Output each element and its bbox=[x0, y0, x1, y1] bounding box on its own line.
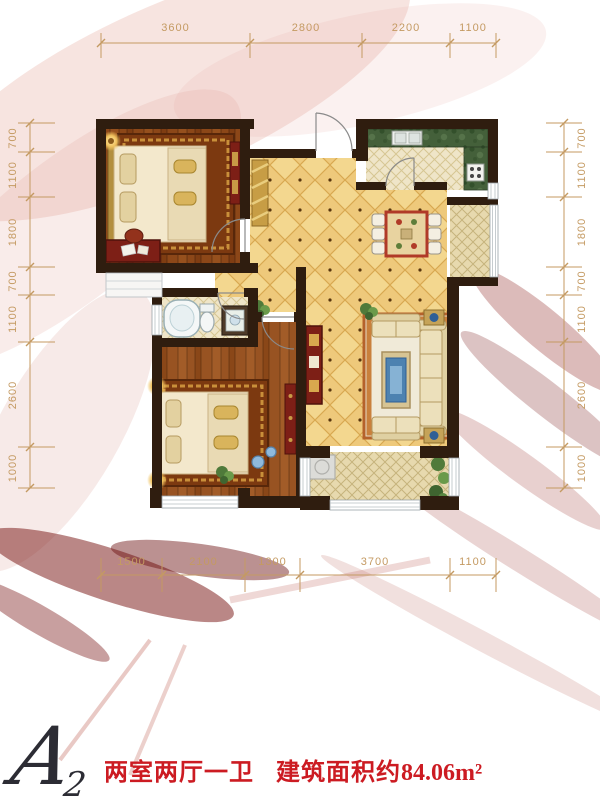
dim-label-right-2: 1800 bbox=[576, 218, 588, 246]
dining-set-icon bbox=[372, 212, 441, 256]
wardrobe-icon bbox=[285, 384, 296, 454]
bookshelf-icon bbox=[306, 326, 322, 404]
stove-icon bbox=[467, 164, 484, 181]
window-icon bbox=[490, 205, 498, 277]
washing-machine-icon bbox=[309, 455, 335, 479]
dim-label-left-2: 1800 bbox=[7, 218, 19, 246]
dim-label-top-2: 2200 bbox=[392, 22, 420, 34]
floorplan-page: 3600280022001100150021001300370011007001… bbox=[0, 0, 600, 800]
floorplan-drawing bbox=[0, 0, 600, 800]
dim-label-left-0: 700 bbox=[7, 127, 19, 148]
area-value: 84.06 bbox=[401, 760, 455, 786]
window-icon bbox=[300, 458, 310, 496]
loveseat-icon bbox=[372, 417, 420, 440]
dim-label-right-1: 1100 bbox=[576, 161, 588, 189]
dim-label-left-5: 2600 bbox=[7, 380, 19, 408]
basin-icon bbox=[266, 447, 276, 457]
master-bedroom-furniture bbox=[101, 131, 240, 262]
dim-label-left-1: 1100 bbox=[7, 161, 19, 189]
bay-window-icon bbox=[162, 496, 238, 508]
coffee-table-icon bbox=[382, 352, 410, 408]
dim-label-bottom-0: 1500 bbox=[117, 556, 145, 568]
sofa-icon bbox=[416, 320, 449, 436]
window-icon bbox=[330, 500, 420, 510]
side-table-icon bbox=[424, 428, 444, 443]
dim-label-right-5: 2600 bbox=[576, 380, 588, 408]
dim-label-top-3: 1100 bbox=[459, 22, 487, 34]
area-prefix: 建筑面积约 bbox=[276, 759, 401, 786]
bed-icon bbox=[154, 390, 248, 476]
sink-icon bbox=[392, 131, 422, 145]
dim-label-right-0: 700 bbox=[576, 127, 588, 148]
dim-label-left-3: 700 bbox=[7, 270, 19, 291]
dim-label-right-6: 1000 bbox=[576, 453, 588, 481]
toilet-icon bbox=[200, 304, 214, 332]
unit-logo: A2 bbox=[14, 722, 85, 793]
area-unit: m² bbox=[455, 760, 482, 786]
dim-label-bottom-3: 3700 bbox=[361, 556, 389, 568]
bay-window-icon bbox=[106, 273, 162, 297]
loveseat-icon bbox=[372, 314, 420, 337]
dim-label-bottom-1: 2100 bbox=[189, 556, 217, 568]
layout-text: 两室两厅一卫 bbox=[104, 759, 254, 786]
unit-caption: 两室两厅一卫建筑面积约84.06m² bbox=[104, 752, 482, 787]
window-icon bbox=[152, 305, 162, 335]
bed-icon bbox=[108, 144, 206, 244]
dim-label-left-4: 1100 bbox=[7, 305, 19, 333]
tv-cabinet-icon bbox=[230, 142, 240, 204]
basin-icon bbox=[252, 456, 264, 468]
dim-label-top-0: 3600 bbox=[161, 22, 189, 34]
dim-label-right-3: 700 bbox=[576, 270, 588, 291]
bathroom-fixtures bbox=[164, 300, 248, 337]
window-icon bbox=[449, 458, 459, 496]
dim-label-bottom-4: 1100 bbox=[459, 556, 487, 568]
room-side-balcony bbox=[450, 197, 490, 277]
dim-label-top-1: 2800 bbox=[292, 22, 320, 34]
entry-door-icon bbox=[316, 113, 352, 151]
window-icon bbox=[488, 183, 498, 199]
side-table-icon bbox=[424, 310, 444, 325]
dim-label-right-4: 1100 bbox=[576, 305, 588, 333]
vanity-icon bbox=[222, 306, 248, 335]
unit-number: 2 bbox=[61, 765, 88, 800]
foyer-cabinet-icon bbox=[252, 160, 268, 226]
dim-label-bottom-2: 1300 bbox=[258, 556, 286, 568]
bathtub-icon bbox=[164, 300, 200, 337]
dim-label-left-6: 1000 bbox=[7, 453, 19, 481]
